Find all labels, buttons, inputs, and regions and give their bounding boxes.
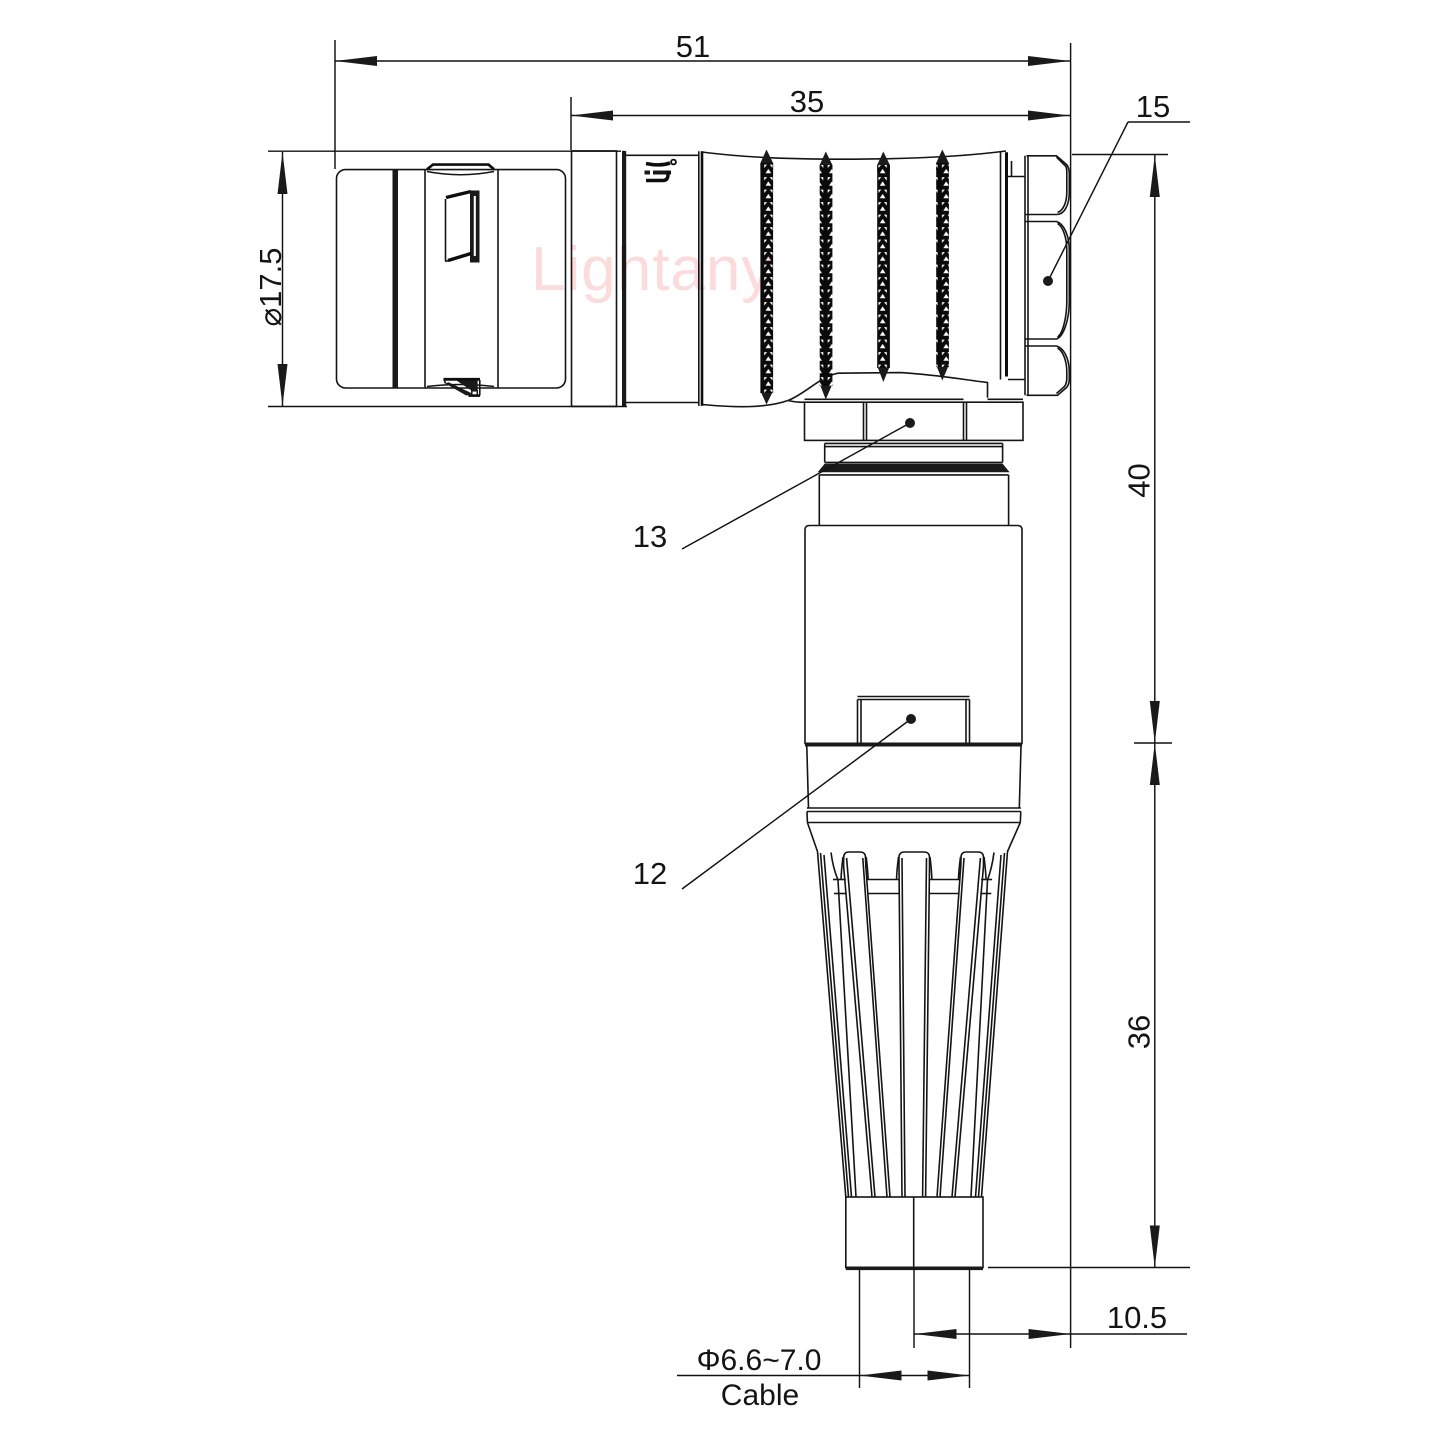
svg-text:40: 40 — [1122, 463, 1157, 497]
svg-text:10.5: 10.5 — [1107, 1300, 1167, 1335]
svg-text:Φ6.6~7.0: Φ6.6~7.0 — [697, 1344, 822, 1377]
svg-text:⌀17.5: ⌀17.5 — [253, 248, 288, 327]
svg-text:35: 35 — [790, 84, 824, 119]
svg-text:Cable: Cable — [721, 1379, 799, 1412]
svg-text:12: 12 — [633, 856, 667, 891]
svg-text:13: 13 — [633, 519, 667, 554]
svg-text:51: 51 — [676, 29, 710, 64]
svg-text:36: 36 — [1122, 1015, 1157, 1049]
svg-text:15: 15 — [1136, 89, 1170, 124]
svg-text:Lightany: Lightany — [531, 235, 773, 304]
